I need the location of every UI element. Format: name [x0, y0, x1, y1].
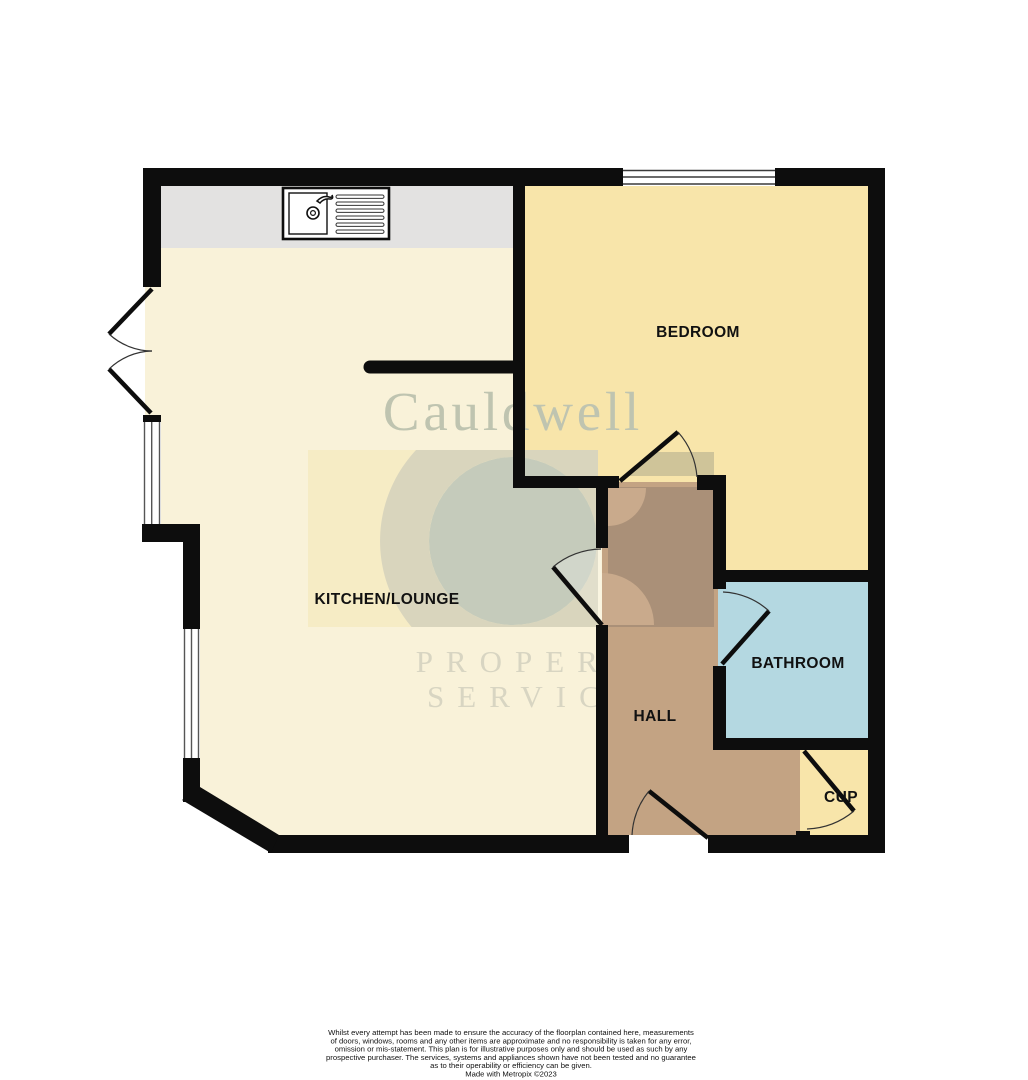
svg-text:BATHROOM: BATHROOM: [751, 655, 844, 672]
svg-text:HALL: HALL: [634, 708, 677, 725]
svg-text:Made with Metropix ©2023: Made with Metropix ©2023: [465, 1070, 557, 1079]
svg-text:CUP: CUP: [824, 789, 858, 806]
svg-text:KITCHEN/LOUNGE: KITCHEN/LOUNGE: [314, 591, 459, 608]
svg-text:BEDROOM: BEDROOM: [656, 324, 740, 341]
